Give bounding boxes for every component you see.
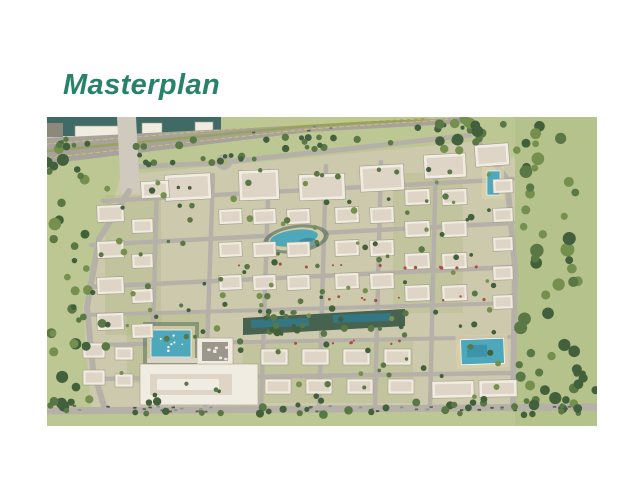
page-title: Masterplan bbox=[63, 70, 220, 100]
masterplan-aerial-svg bbox=[47, 117, 597, 426]
slide: Masterplan bbox=[0, 0, 640, 480]
masterplan-map bbox=[47, 117, 597, 426]
